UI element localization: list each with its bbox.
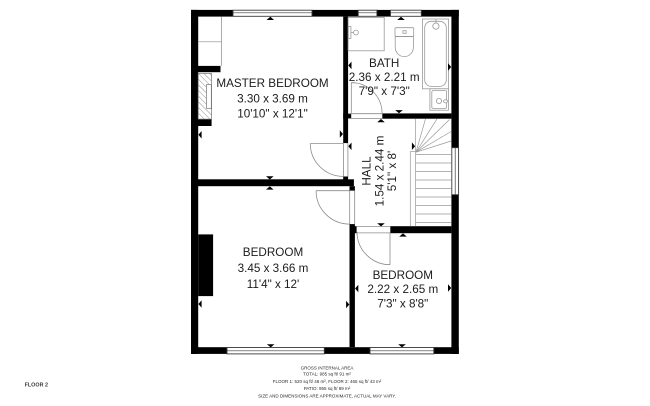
svg-text:BEDROOM: BEDROOM bbox=[243, 246, 303, 259]
svg-text:PATIO: 955 sq ft/ 89 m²: PATIO: 955 sq ft/ 89 m² bbox=[304, 386, 351, 391]
svg-text:11'4" x 12': 11'4" x 12' bbox=[247, 278, 300, 291]
svg-text:3.45 x 3.66 m: 3.45 x 3.66 m bbox=[238, 262, 309, 275]
svg-text:10'10" x 12'1": 10'10" x 12'1" bbox=[237, 108, 308, 121]
svg-text:5'1" x 8': 5'1" x 8' bbox=[386, 151, 399, 191]
svg-text:3.30 x 3.69 m: 3.30 x 3.69 m bbox=[237, 92, 308, 105]
svg-text:FLOOR 1: 520 sq ft/ 48 m², FLO: FLOOR 1: 520 sq ft/ 48 m², FLOOR 2: 465 … bbox=[273, 379, 382, 384]
svg-text:BATH: BATH bbox=[369, 57, 399, 70]
svg-text:MASTER BEDROOM: MASTER BEDROOM bbox=[216, 77, 328, 90]
svg-text:1.54 x 2.44 m: 1.54 x 2.44 m bbox=[374, 136, 387, 207]
svg-text:BEDROOM: BEDROOM bbox=[373, 269, 433, 282]
svg-text:TOTAL: 985 sq ft/ 91 m²: TOTAL: 985 sq ft/ 91 m² bbox=[303, 371, 351, 376]
svg-text:SIZE AND DIMENSIONS ARE APPROX: SIZE AND DIMENSIONS ARE APPROXIMATE, ACT… bbox=[258, 393, 396, 398]
svg-text:HALL: HALL bbox=[361, 156, 374, 186]
svg-text:FLOOR 2: FLOOR 2 bbox=[25, 383, 48, 389]
svg-text:2.36 x 2.21 m: 2.36 x 2.21 m bbox=[349, 71, 420, 84]
svg-text:2.22 x 2.65 m: 2.22 x 2.65 m bbox=[367, 283, 438, 296]
svg-text:7'9" x 7'3": 7'9" x 7'3" bbox=[359, 85, 410, 98]
svg-text:GROSS INTERNAL AREA: GROSS INTERNAL AREA bbox=[301, 366, 354, 371]
svg-text:7'3" x 8'8": 7'3" x 8'8" bbox=[377, 298, 428, 311]
